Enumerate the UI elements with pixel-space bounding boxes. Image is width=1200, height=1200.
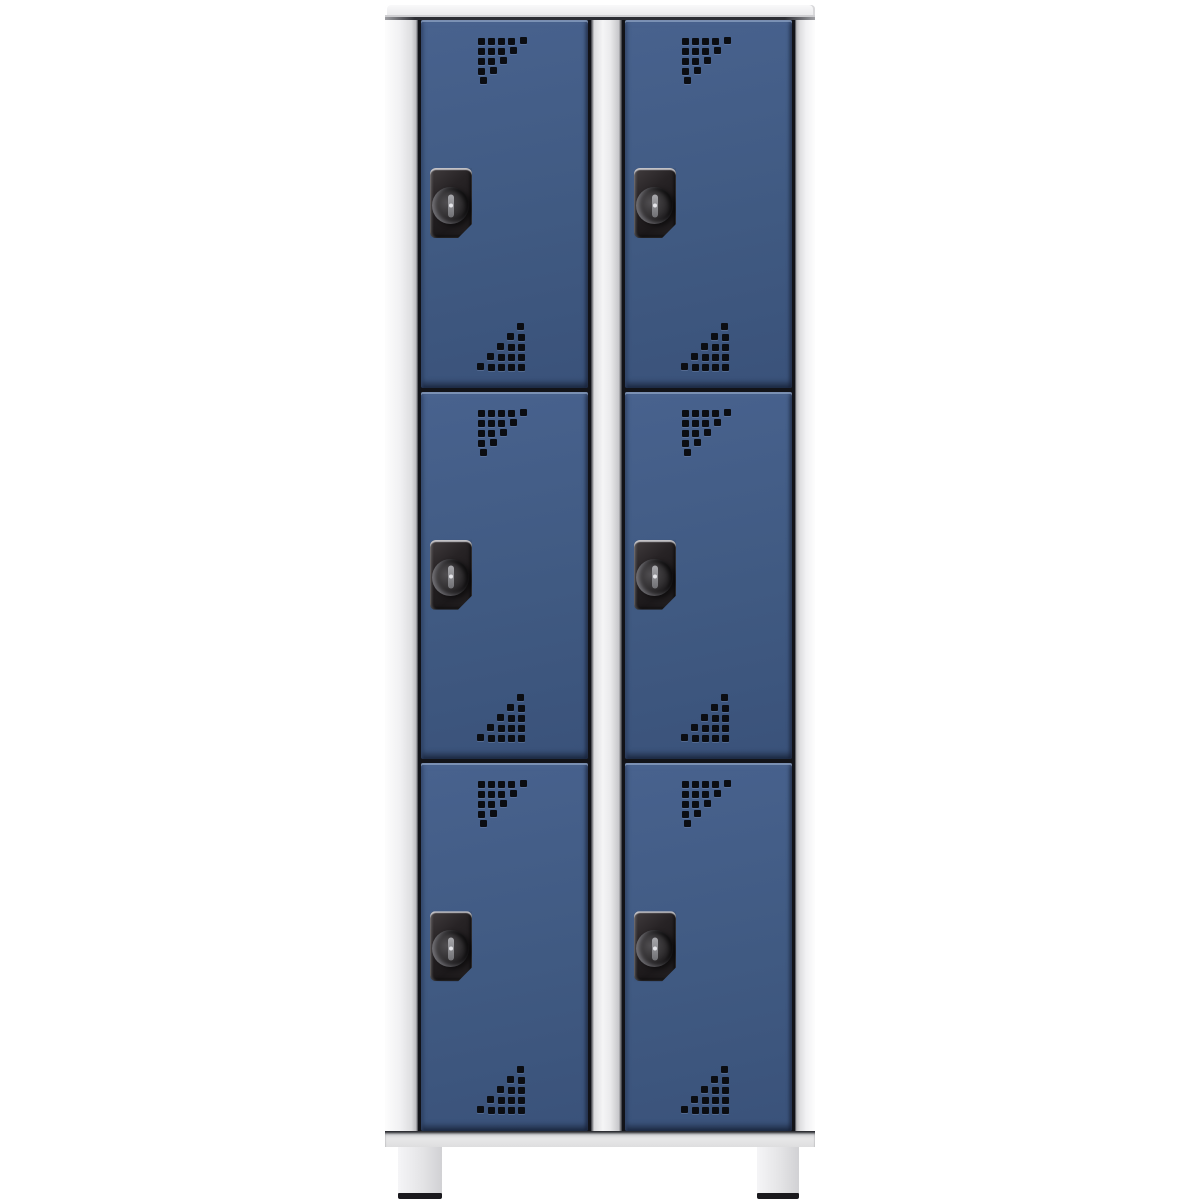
perforation-hole [508,781,515,788]
perforation-hole [691,353,698,360]
side-panel-left [385,20,418,1147]
perforation-hole [498,354,505,361]
perforation-hole [702,1107,709,1114]
perforation-hole [508,725,515,732]
cam-lock [634,540,676,610]
perforation-hole [682,38,689,45]
perforation-hole [712,715,719,722]
perforation-hole [702,791,709,798]
perforation-hole [722,334,729,341]
perforation-hole [694,439,701,446]
door-bottom-right [625,763,792,1131]
perforation-hole [684,820,691,827]
perforation-pattern-top [478,38,530,86]
perforation-hole [711,333,718,340]
perforation-hole [508,1097,515,1104]
perforation-hole [490,810,497,817]
cam-lock [430,911,472,981]
locker-top-lid [385,5,815,17]
perforation-hole [722,364,729,371]
lock-knob [432,187,469,224]
perforation-hole [692,38,699,45]
perforation-pattern-bottom [478,324,530,372]
perforation-hole [498,48,505,55]
perforation-hole [714,419,721,426]
perforation-hole [518,705,525,712]
perforation-hole [701,714,708,721]
perforation-hole [692,735,699,742]
perforation-pattern-top [478,781,530,829]
door-column-left [418,20,591,1131]
perforation-hole [498,410,505,417]
perforation-hole [500,800,507,807]
perforation-hole [497,714,504,721]
perforation-hole [518,354,525,361]
perforation-hole [520,37,527,44]
perforation-hole [712,410,719,417]
perforation-hole [712,1087,719,1094]
lock-knob [636,187,673,224]
perforation-hole [721,1066,728,1073]
perforation-hole [704,57,711,64]
cam-lock [430,540,472,610]
perforation-hole [682,410,689,417]
perforation-hole [510,419,517,426]
perforation-hole [712,364,719,371]
perforation-hole [722,735,729,742]
leg-right [757,1147,799,1193]
perforation-hole [478,791,485,798]
perforation-hole [478,58,485,65]
perforation-hole [518,725,525,732]
perforation-hole [691,1096,698,1103]
perforation-hole [477,734,484,741]
perforation-hole [488,38,495,45]
perforation-hole [712,781,719,788]
perforation-hole [517,694,524,701]
perforation-hole [702,420,709,427]
perforation-hole [702,38,709,45]
perforation-pattern-bottom [682,695,734,743]
perforation-hole [498,735,505,742]
perforation-hole [508,735,515,742]
perforation-hole [714,790,721,797]
perforation-pattern-bottom [478,695,530,743]
perforation-hole [507,333,514,340]
door-top-left [421,20,588,388]
perforation-hole [682,58,689,65]
perforation-hole [498,420,505,427]
lock-knob [636,930,673,967]
perforation-hole [498,38,505,45]
perforation-hole [518,1097,525,1104]
perforation-hole [712,735,719,742]
door-column-right [622,20,795,1131]
perforation-hole [692,791,699,798]
perforation-hole [497,343,504,350]
lock-knob [636,559,673,596]
perforation-hole [712,725,719,732]
perforation-hole [497,1086,504,1093]
perforation-hole [488,801,495,808]
key-slot-icon [652,937,658,960]
perforation-hole [520,780,527,787]
perforation-hole [508,344,515,351]
center-divider [591,20,622,1131]
perforation-hole [682,430,689,437]
perforation-hole [692,58,699,65]
perforation-pattern-top [478,410,530,458]
perforation-hole [682,48,689,55]
perforation-hole [488,430,495,437]
perforation-hole [711,704,718,711]
perforation-hole [701,1086,708,1093]
perforation-hole [488,781,495,788]
perforation-hole [692,801,699,808]
perforation-pattern-bottom [478,1067,530,1115]
perforation-hole [724,37,731,44]
perforation-hole [724,780,731,787]
key-slot-icon [448,194,454,217]
perforation-hole [480,77,487,84]
perforation-hole [704,800,711,807]
perforation-hole [498,781,505,788]
perforation-hole [722,725,729,732]
side-panel-right [795,20,815,1147]
perforation-hole [684,449,691,456]
perforation-hole [478,420,485,427]
perforation-hole [498,725,505,732]
perforation-hole [712,1107,719,1114]
door-top-right [625,20,792,388]
perforation-hole [508,1107,515,1114]
perforation-hole [488,364,495,371]
door-bottom-left [421,763,588,1131]
perforation-hole [480,820,487,827]
perforation-hole [694,67,701,74]
perforation-hole [487,1096,494,1103]
perforation-pattern-top [682,38,734,86]
perforation-hole [488,48,495,55]
perforation-hole [487,724,494,731]
perforation-hole [478,440,485,447]
perforation-hole [682,801,689,808]
perforation-hole [692,48,699,55]
perforation-hole [478,801,485,808]
perforation-hole [508,38,515,45]
door-middle-right [625,392,792,760]
perforation-hole [490,67,497,74]
perforation-hole [702,781,709,788]
perforation-hole [518,334,525,341]
perforation-hole [682,781,689,788]
perforation-hole [722,1107,729,1114]
perforation-hole [488,735,495,742]
perforation-hole [478,811,485,818]
perforation-hole [508,410,515,417]
perforation-hole [517,323,524,330]
cam-lock [634,168,676,238]
perforation-hole [722,344,729,351]
perforation-hole [682,440,689,447]
perforation-hole [702,735,709,742]
perforation-hole [682,791,689,798]
perforation-hole [518,735,525,742]
perforation-hole [508,1087,515,1094]
perforation-hole [712,1097,719,1104]
perforation-hole [498,791,505,798]
perforation-hole [480,449,487,456]
perforation-pattern-top [682,410,734,458]
perforation-hole [478,781,485,788]
perforation-hole [712,38,719,45]
perforation-hole [510,790,517,797]
plinth-rail [385,1131,815,1147]
perforation-hole [500,57,507,64]
perforation-hole [701,343,708,350]
perforation-pattern-top [682,781,734,829]
perforation-hole [500,429,507,436]
perforation-hole [681,734,688,741]
perforation-hole [518,1107,525,1114]
perforation-hole [722,705,729,712]
perforation-hole [722,1077,729,1084]
perforation-hole [518,344,525,351]
perforation-hole [478,430,485,437]
perforation-hole [488,410,495,417]
perforation-hole [722,715,729,722]
perforation-hole [478,48,485,55]
perforation-hole [704,429,711,436]
perforation-hole [702,48,709,55]
perforation-hole [681,1106,688,1113]
perforation-hole [702,364,709,371]
perforation-hole [712,354,719,361]
perforation-hole [722,1097,729,1104]
perforation-hole [518,1087,525,1094]
door-middle-left [421,392,588,760]
perforation-hole [507,1076,514,1083]
perforation-hole [702,725,709,732]
perforation-hole [702,1097,709,1104]
perforation-hole [508,715,515,722]
perforation-hole [692,410,699,417]
key-slot-icon [652,194,658,217]
perforation-hole [498,1107,505,1114]
perforation-pattern-bottom [682,1067,734,1115]
perforation-hole [508,354,515,361]
perforation-hole [721,694,728,701]
perforation-hole [682,420,689,427]
cam-lock [430,168,472,238]
perforation-hole [518,364,525,371]
key-slot-icon [448,566,454,589]
perforation-hole [518,1077,525,1084]
locker-body [385,20,815,1147]
key-slot-icon [652,566,658,589]
perforation-hole [508,364,515,371]
perforation-hole [488,1107,495,1114]
perforation-hole [722,1087,729,1094]
perforation-pattern-bottom [682,324,734,372]
lock-knob [432,930,469,967]
perforation-hole [510,47,517,54]
perforation-hole [702,410,709,417]
perforation-hole [478,38,485,45]
perforation-hole [712,344,719,351]
perforation-hole [692,430,699,437]
perforation-hole [694,810,701,817]
perforation-hole [692,1107,699,1114]
perforation-hole [487,353,494,360]
cam-lock [634,911,676,981]
perforation-hole [682,68,689,75]
perforation-hole [714,47,721,54]
perforation-hole [724,409,731,416]
perforation-hole [682,811,689,818]
perforation-hole [711,1076,718,1083]
lock-knob [432,559,469,596]
perforation-hole [520,409,527,416]
perforation-hole [507,704,514,711]
perforation-hole [691,724,698,731]
perforation-hole [488,420,495,427]
perforation-hole [488,791,495,798]
perforation-hole [477,1106,484,1113]
perforation-hole [722,354,729,361]
perforation-hole [692,364,699,371]
perforation-hole [702,354,709,361]
perforation-hole [498,1097,505,1104]
perforation-hole [490,439,497,446]
perforation-hole [477,363,484,370]
perforation-hole [692,420,699,427]
locker-cabinet [385,5,815,1199]
perforation-hole [518,715,525,722]
perforation-hole [684,77,691,84]
perforation-hole [498,364,505,371]
perforation-hole [488,58,495,65]
perforation-hole [692,781,699,788]
perforation-hole [681,363,688,370]
perforation-hole [478,410,485,417]
key-slot-icon [448,937,454,960]
perforation-hole [517,1066,524,1073]
perforation-hole [478,68,485,75]
leg-left [398,1147,442,1193]
perforation-hole [721,323,728,330]
